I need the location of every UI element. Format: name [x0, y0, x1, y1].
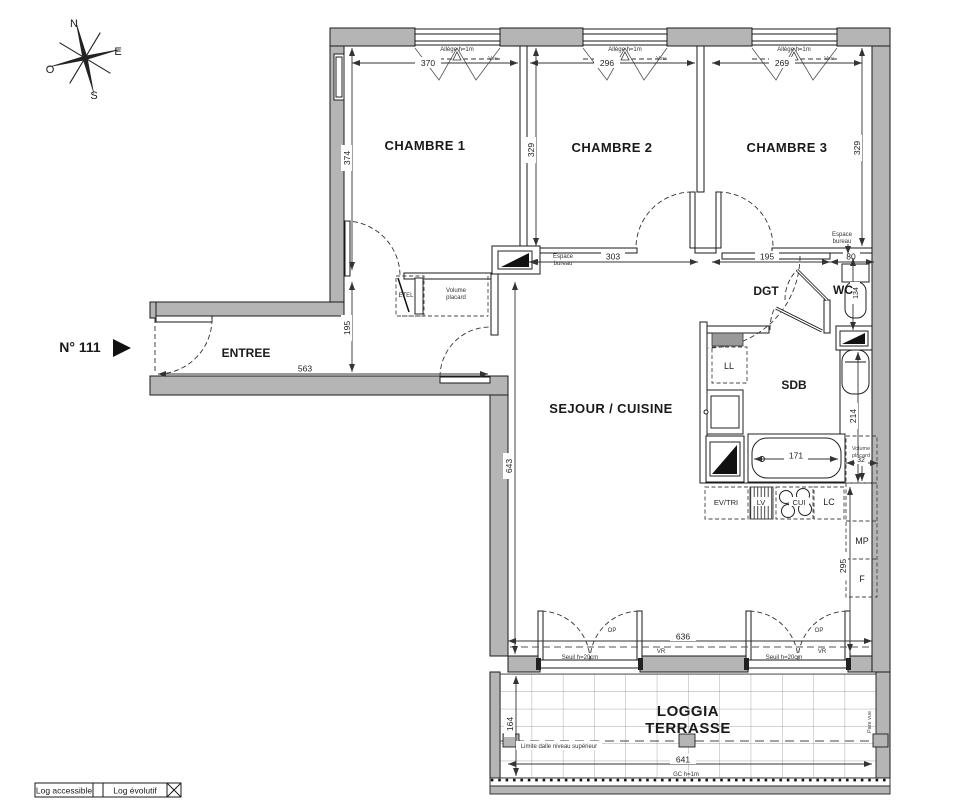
- unit-number: N° 111: [59, 339, 131, 357]
- sejour-passage-door: [440, 327, 490, 383]
- window-chambre1: [415, 29, 500, 80]
- gc-label: GC h=1m: [673, 772, 699, 778]
- radiator-icon: [334, 54, 344, 100]
- compass-east-label: E: [114, 46, 121, 58]
- dim-kitchen-depth: 295: [838, 559, 848, 573]
- dim-sdb-depth: 214: [848, 409, 858, 423]
- dim-loggia-width: 641: [676, 755, 690, 765]
- dim-chambre1-depth: 374: [342, 151, 352, 165]
- espace-bureau-1-line2: bureau: [554, 261, 573, 267]
- room-label-entree: ENTREE: [222, 346, 271, 360]
- volume-placard-1-line1: Volume: [446, 288, 467, 294]
- vsu-label-2: Vsu: [656, 56, 665, 62]
- vr-label-1: VR: [657, 649, 666, 655]
- legend: Log accessible Log évolutif: [35, 783, 181, 797]
- duct-shaft-icon-bath: [706, 436, 744, 482]
- op-label-1: OP: [608, 628, 617, 634]
- vanity-icon: [704, 390, 743, 434]
- dim-chambre1-width: 370: [421, 58, 435, 68]
- room-label-sejour-cuisine: SEJOUR / CUISINE: [549, 401, 672, 416]
- dim-sejour-width: 636: [676, 632, 690, 642]
- freezer-label: F: [859, 574, 865, 584]
- window-chambre3: [752, 29, 837, 80]
- floor-plan-page: N E O S: [0, 0, 980, 800]
- compass-south-label: S: [90, 90, 97, 102]
- room-label-chambre2: CHAMBRE 2: [572, 140, 653, 155]
- allege-label-1: Allège h=1m: [440, 47, 474, 53]
- espace-bureau-2-line1: Espace: [832, 232, 853, 238]
- allege-label-2: Allège h=1m: [608, 47, 642, 53]
- allege-label-3: Allège h=1m: [777, 47, 811, 53]
- espace-bureau-2-line2: bureau: [833, 239, 852, 245]
- legend-accessible-checkbox: [93, 783, 103, 797]
- volume-placard-2-line1: Volume: [852, 446, 870, 452]
- legend-evolutif-label: Log évolutif: [113, 786, 157, 796]
- pare-vue-label: Pare vue: [867, 711, 873, 733]
- room-label-wc: WC: [833, 283, 853, 297]
- room-label-chambre3: CHAMBRE 3: [747, 140, 828, 155]
- cooktop-label: CUI: [793, 498, 806, 507]
- lc-label: LC: [823, 497, 835, 507]
- room-label-loggia-line2: TERRASSE: [645, 720, 731, 737]
- sdb-door: [770, 307, 822, 331]
- unit-number-label: N° 111: [59, 339, 101, 355]
- volume-placard-1-line2: placard: [446, 295, 466, 301]
- entry-arrow-icon: [113, 339, 131, 357]
- dishwasher-label: LV: [757, 498, 766, 507]
- chambre2-door: [636, 192, 695, 248]
- compass-west-label: O: [46, 64, 55, 76]
- room-label-dgt: DGT: [753, 284, 779, 298]
- dim-entree-depth: 195: [342, 321, 352, 335]
- op-label-2: OP: [815, 628, 824, 634]
- entry-door: [155, 316, 212, 374]
- dim-loggia-depth: 164: [505, 717, 515, 731]
- washing-machine-zone: [712, 333, 747, 383]
- washing-machine-label: LL: [724, 361, 734, 371]
- seuil-label-2: Seuil h=20cm: [766, 655, 803, 661]
- dim-dgt-width: 195: [760, 252, 774, 262]
- dim-chambre3-depth: 329: [852, 141, 862, 155]
- dim-bathtub: 171: [789, 451, 803, 461]
- washbasin-icon: [842, 350, 869, 394]
- room-label-chambre1: CHAMBRE 1: [385, 138, 466, 153]
- chambre1-door: [345, 221, 400, 276]
- dim-entree-width: 563: [298, 364, 312, 374]
- volume-placard-2-line2: placard: [852, 453, 870, 459]
- legend-evolutif-checkbox-checked: [167, 783, 181, 797]
- etel-label: ETEL: [398, 293, 414, 299]
- seuil-label-1: Seuil h=20cm: [562, 655, 599, 661]
- dim-chambre3-width: 269: [775, 58, 789, 68]
- vsu-label-3: Vsu: [824, 56, 833, 62]
- espace-bureau-1-line1: Espace: [553, 254, 574, 260]
- sink-label: EV/TRI: [714, 498, 738, 507]
- limite-dalle-label: Limite dalle niveau supérieur: [521, 744, 597, 750]
- duct-shaft-icon-wc: [836, 326, 872, 350]
- dim-wc-depth: 134: [853, 287, 860, 299]
- legend-accessible-label: Log accessible: [36, 786, 93, 796]
- chambre3-door: [716, 192, 773, 248]
- room-label-sdb: SDB: [781, 378, 807, 392]
- mp-label: MP: [855, 536, 869, 546]
- window-chambre2: [583, 29, 667, 80]
- dim-chambre2-width: 296: [600, 58, 614, 68]
- dim-sejour-depth: 643: [504, 459, 514, 473]
- interior-partitions: [404, 46, 872, 483]
- vsu-label-1: Vsu: [488, 56, 497, 62]
- vr-label-2: VR: [818, 649, 827, 655]
- dim-chambre2-bottom: 303: [606, 252, 620, 262]
- dim-chambre2-depth: 329: [526, 143, 536, 157]
- compass-rose-icon: N E O S: [37, 10, 133, 106]
- room-label-loggia-line1: LOGGIA: [657, 703, 719, 720]
- compass-north-label: N: [70, 18, 78, 30]
- floor-plan-drawing: N E O S: [0, 0, 980, 800]
- duct-shaft-icon-sejour: [492, 246, 540, 274]
